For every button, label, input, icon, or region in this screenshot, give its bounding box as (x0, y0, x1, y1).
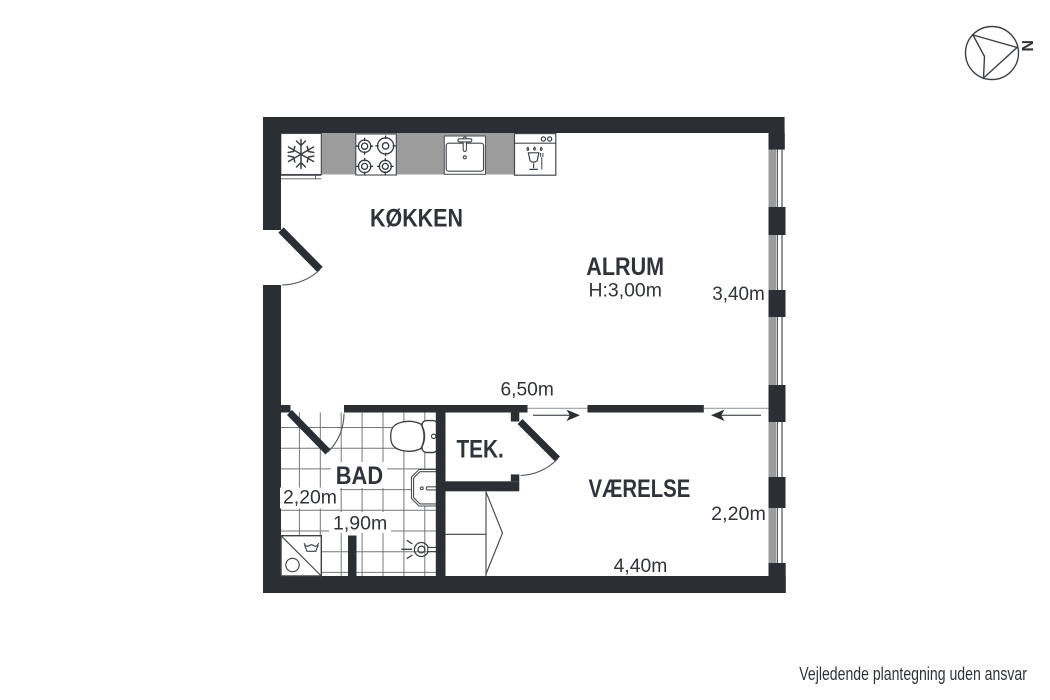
svg-text:BAD: BAD (336, 462, 383, 490)
svg-text:1,90m: 1,90m (333, 514, 387, 535)
svg-text:N: N (1018, 40, 1035, 52)
svg-text:4,40m: 4,40m (614, 556, 668, 577)
svg-text:VÆRELSE: VÆRELSE (589, 475, 691, 503)
svg-text:ALRUM: ALRUM (586, 253, 664, 281)
svg-text:Vejledende plantegning uden an: Vejledende plantegning uden ansvar (799, 663, 1027, 684)
svg-text:H:3,00m: H:3,00m (589, 281, 662, 302)
svg-text:TEK.: TEK. (457, 436, 504, 464)
svg-text:2,20m: 2,20m (283, 488, 337, 509)
svg-text:3,40m: 3,40m (712, 284, 765, 305)
svg-text:2,20m: 2,20m (711, 504, 766, 525)
svg-text:KØKKEN: KØKKEN (370, 205, 463, 233)
svg-text:6,50m: 6,50m (501, 380, 554, 401)
